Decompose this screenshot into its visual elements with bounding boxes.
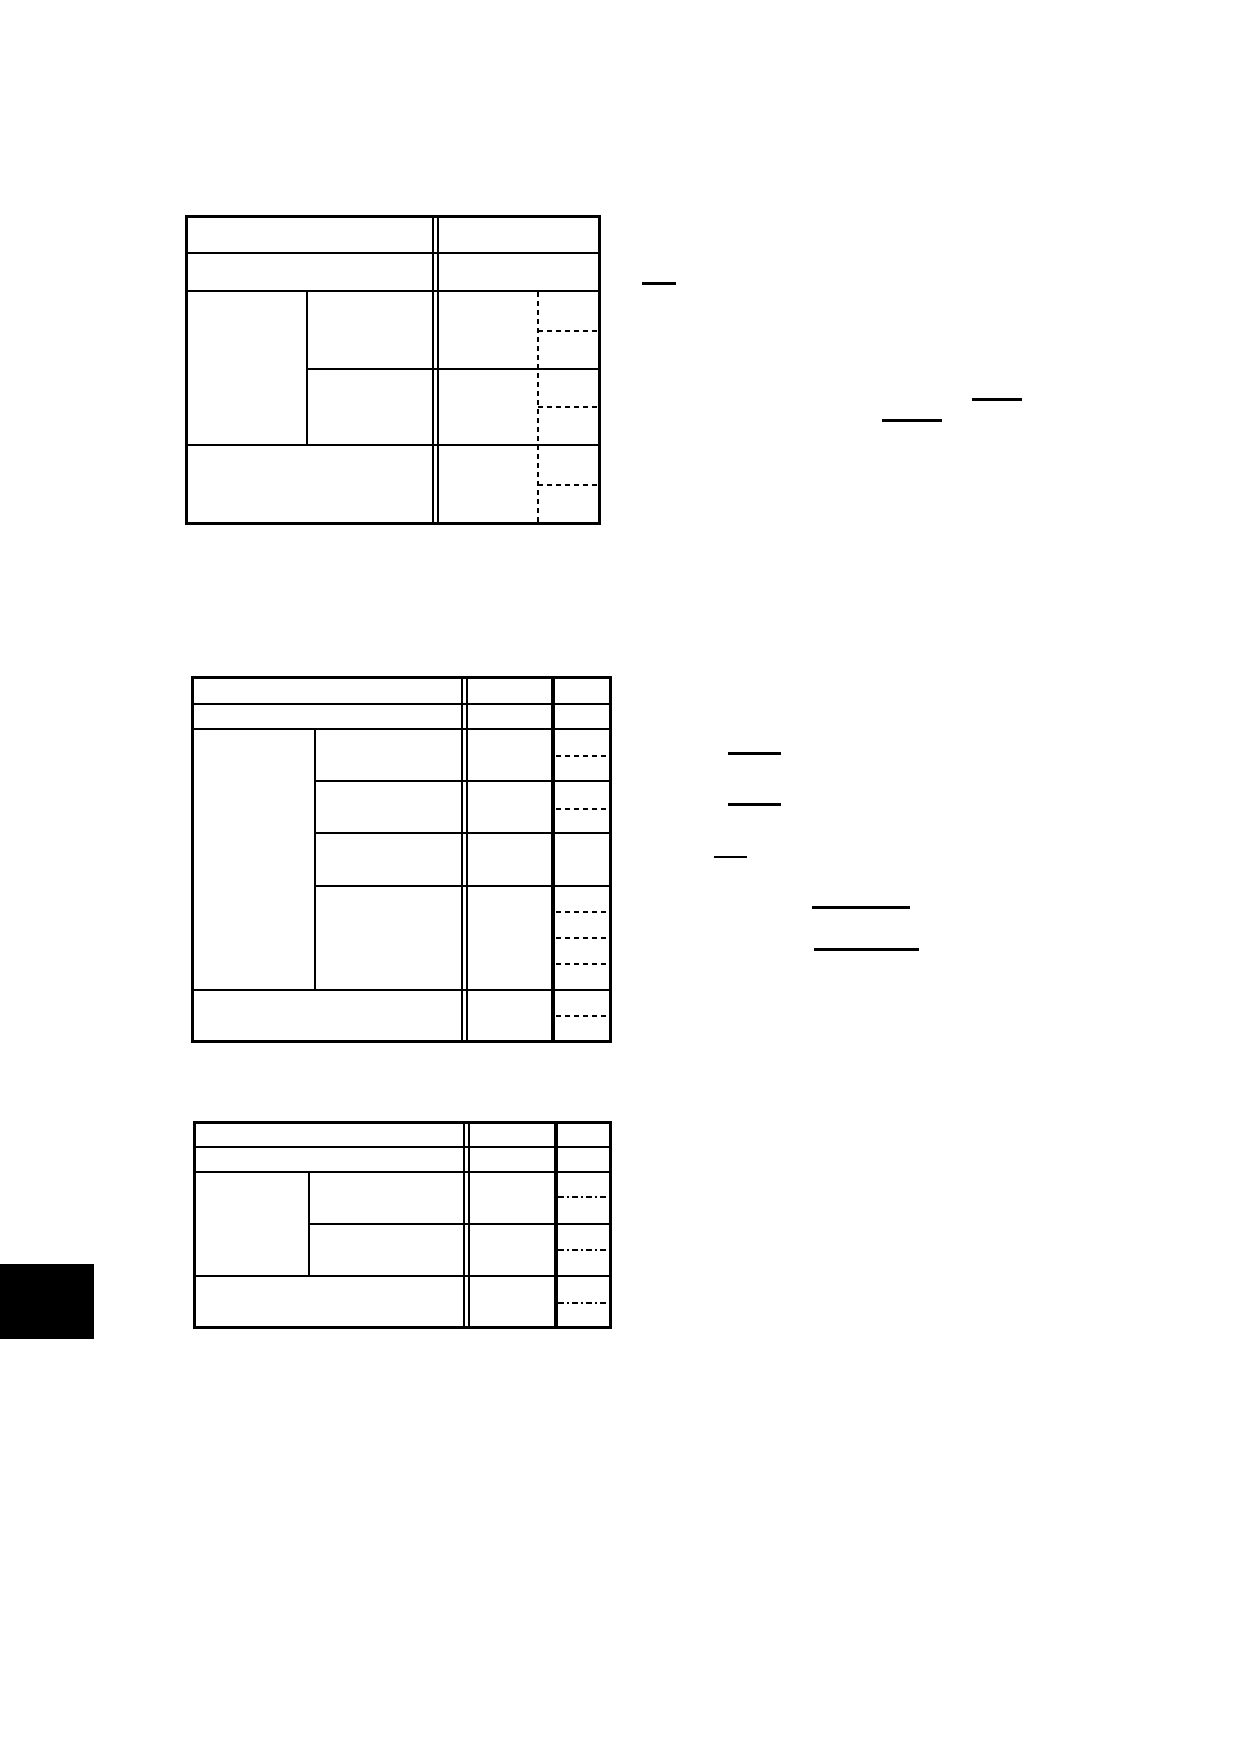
table-1-double-rule-left xyxy=(432,215,434,525)
margin-rule-3 xyxy=(882,419,942,422)
margin-rule-8 xyxy=(814,948,919,951)
table-3-dashdot-cell-divider-3 xyxy=(558,1302,612,1304)
margin-rule-2 xyxy=(972,398,1022,401)
table-3-row-divider-1 xyxy=(193,1146,612,1148)
table-3-dashdot-cell-divider-1 xyxy=(558,1196,612,1198)
table-1-dashed-cell-divider-2 xyxy=(538,406,601,408)
table-1-double-rule-right xyxy=(437,215,439,525)
table-3-thick-column-divider xyxy=(554,1121,558,1329)
table-3-double-rule-left xyxy=(463,1121,465,1329)
table-2-subrow-divider-2 xyxy=(314,832,612,834)
table-2-row-divider-1 xyxy=(191,703,612,705)
table-1-subcolumn-divider xyxy=(306,292,308,446)
table-2-subrow-divider-1 xyxy=(314,780,612,782)
table-3-outline xyxy=(193,1121,612,1329)
table-2-row-divider-2 xyxy=(191,728,612,730)
margin-rule-6 xyxy=(714,856,747,858)
margin-rule-5 xyxy=(728,803,781,806)
table-2-row-divider-3 xyxy=(191,989,612,991)
table-2-subcolumn-divider xyxy=(314,730,316,991)
table-2-outline xyxy=(191,676,612,1043)
table-1-dashed-cell-divider-3 xyxy=(538,484,601,486)
table-1-dashed-column-divider xyxy=(537,292,539,525)
table-2-dashed-cell-divider-3 xyxy=(556,911,612,913)
table-2-dashed-cell-divider-4 xyxy=(556,937,612,939)
table-2-thick-column-divider xyxy=(551,676,555,1043)
margin-rule-7 xyxy=(812,906,910,909)
table-1-subrow-divider xyxy=(306,368,601,370)
table-3-dashdot-cell-divider-2 xyxy=(558,1249,612,1251)
table-2-dashed-cell-divider-5 xyxy=(556,963,612,965)
table-2-dashed-cell-divider-6 xyxy=(556,1015,612,1017)
margin-rule-4 xyxy=(728,752,781,755)
table-3-subrow-divider xyxy=(308,1223,612,1225)
table-2-subrow-divider-3 xyxy=(314,885,612,887)
table-2-dashed-cell-divider-1 xyxy=(556,755,612,757)
table-3-subcolumn-divider xyxy=(308,1173,310,1277)
table-2-double-rule-right xyxy=(466,676,468,1043)
table-3-double-rule-right xyxy=(468,1121,470,1329)
margin-rule-1 xyxy=(642,282,676,285)
document-page xyxy=(0,0,1240,1754)
registration-block xyxy=(0,1264,94,1339)
table-1-dashed-cell-divider-1 xyxy=(538,330,601,332)
table-2-double-rule-left xyxy=(461,676,463,1043)
table-2-dashed-cell-divider-2 xyxy=(556,808,612,810)
table-3-row-divider-3 xyxy=(193,1275,612,1277)
table-3-row-divider-2 xyxy=(193,1171,612,1173)
table-1-row-divider-1 xyxy=(185,252,601,254)
